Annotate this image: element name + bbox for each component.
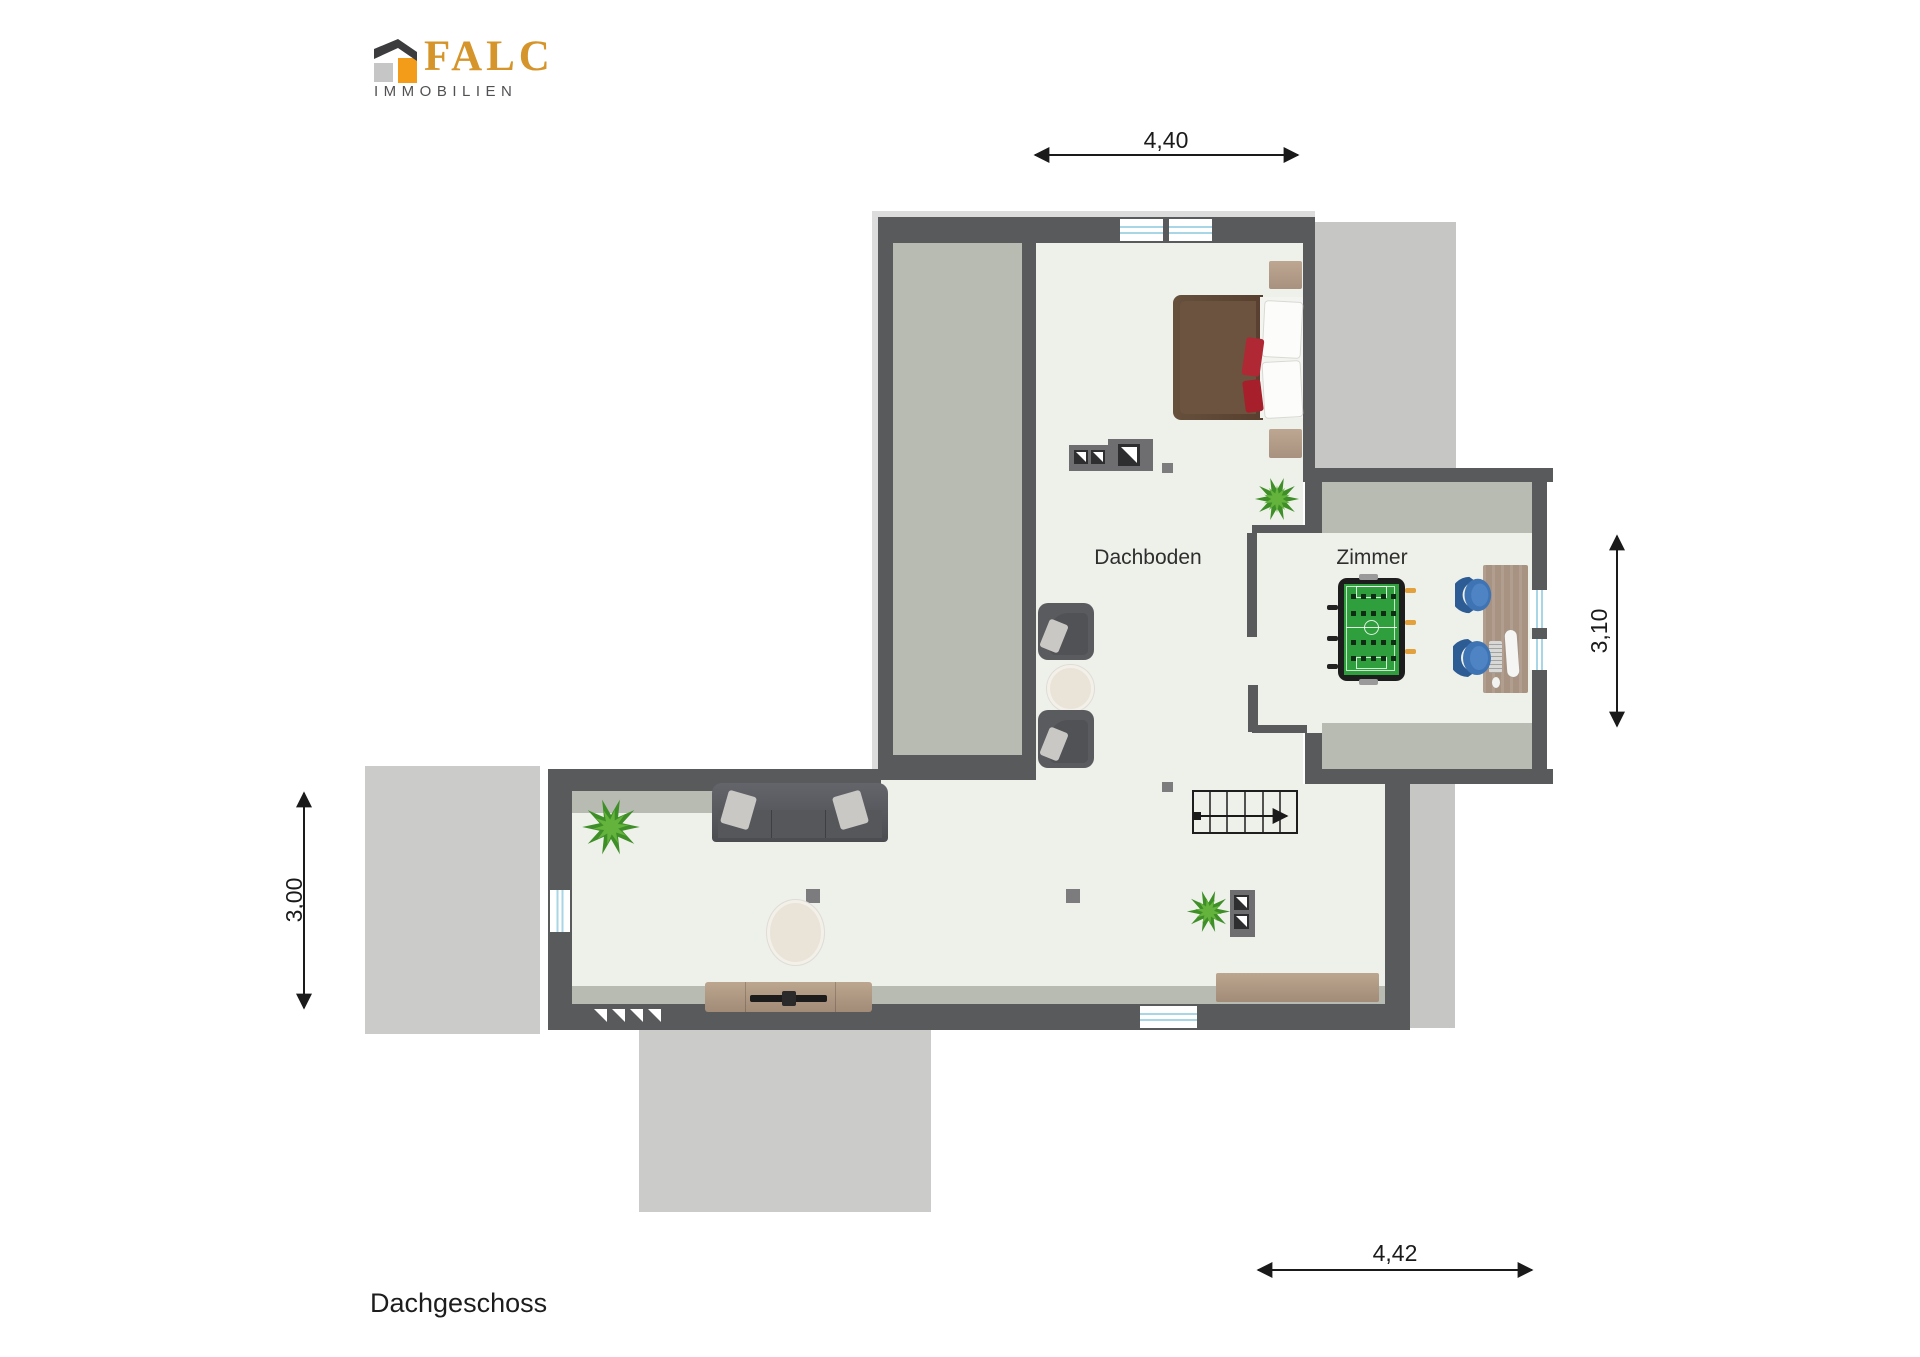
foosball-handle-left-1	[1327, 605, 1338, 610]
plant-bedroom	[1254, 476, 1300, 522]
post-near-stairs	[1162, 782, 1173, 792]
shelf-triangle-2	[1236, 916, 1247, 927]
bed-pillow-top	[1262, 300, 1304, 359]
post-living-right	[1066, 889, 1080, 903]
floor-connector	[881, 780, 1036, 791]
side-table-round	[1047, 665, 1094, 712]
wall-main-right	[1303, 243, 1315, 468]
dimension-label-bottom: 4,42	[1335, 1240, 1455, 1267]
window-zimmer-2	[1530, 639, 1549, 670]
wall-below-zimmer	[1385, 769, 1410, 1028]
drawer-triangle-3	[1121, 447, 1137, 463]
falc-house-logo-icon	[372, 38, 419, 85]
foosball-players-row-1	[1346, 594, 1397, 599]
foosball-table	[1338, 578, 1405, 681]
foosball-field	[1344, 584, 1399, 675]
wall-jog-top	[1252, 525, 1305, 533]
floor-bottom-wing	[572, 791, 1211, 1004]
falc-logo: FALC IMMOBILIEN	[372, 36, 632, 106]
foosball-handle-right-2	[1405, 620, 1416, 625]
drawer-triangle-1	[1076, 452, 1086, 462]
wall-wing-right	[1022, 243, 1036, 780]
attic-gray-wing-interior	[893, 243, 1022, 755]
bed-pillow-bottom	[1262, 360, 1304, 419]
armchair-2	[1038, 710, 1094, 768]
drawer-triangle-2	[1093, 452, 1103, 462]
foosball-handle-left-2	[1327, 636, 1338, 641]
red-accent-pillow-2	[1242, 379, 1264, 413]
sofa	[712, 783, 888, 842]
wall-zimmer-bottom	[1305, 769, 1553, 784]
foosball-players-row-2	[1346, 611, 1397, 616]
window-left	[550, 890, 570, 932]
window-bottom	[1140, 1006, 1197, 1028]
sideboard-right	[1216, 973, 1379, 1002]
roof-area-bottom	[639, 1028, 931, 1212]
tv-sideboard-divider-2	[835, 982, 836, 1012]
foosball-handle-left-3	[1327, 664, 1338, 669]
plant-living	[581, 797, 641, 857]
wall-wing-left	[878, 217, 893, 780]
room-label-zimmer: Zimmer	[1312, 546, 1432, 570]
room-label-dachboden: Dachboden	[1068, 546, 1228, 570]
staircase	[1192, 790, 1298, 834]
window-top-2	[1169, 219, 1212, 241]
window-zimmer-1	[1530, 590, 1549, 628]
office-chair-2	[1453, 636, 1495, 680]
wall-bottom	[548, 1004, 1410, 1030]
wall-zimmer-left-upper	[1305, 482, 1322, 533]
post-living-left	[806, 889, 820, 903]
dimension-label-top: 4,40	[1106, 127, 1226, 154]
plant-hall	[1186, 889, 1231, 934]
window-top-1	[1120, 219, 1163, 241]
dimension-label-left: 3,00	[281, 860, 311, 940]
office-chair-1	[1455, 574, 1495, 616]
foosball-center-circle	[1364, 620, 1379, 635]
zimmer-gray-band-bottom	[1322, 723, 1532, 769]
foosball-goal-top	[1359, 574, 1378, 580]
roof-area-left	[365, 766, 540, 1034]
floor-plan-page: FALC IMMOBILIEN	[0, 0, 1920, 1357]
logo-brand-text: FALC	[424, 32, 554, 81]
roof-area-top-right	[1315, 222, 1456, 468]
nightstand-bottom	[1269, 429, 1302, 458]
wall-top	[881, 217, 1315, 243]
zimmer-gray-band-top	[1322, 482, 1532, 533]
foosball-players-row-4	[1346, 656, 1397, 661]
logo-subtitle-text: IMMOBILIEN	[374, 83, 517, 100]
floor-title: Dachgeschoss	[370, 1288, 547, 1319]
foosball-handle-right-3	[1405, 649, 1416, 654]
hatch-triangle-2	[612, 1009, 625, 1022]
sofa-cushion-2	[772, 810, 826, 838]
wall-wing-bottom	[878, 755, 1036, 780]
wall-jog-bottom	[1252, 725, 1307, 733]
post-near-dresser	[1162, 463, 1173, 473]
foosball-handle-right-1	[1405, 588, 1416, 593]
hatch-triangle-4	[648, 1009, 661, 1022]
nightstand-top	[1269, 261, 1302, 289]
foosball-players-row-3	[1346, 640, 1397, 645]
wall-zimmer-top	[1303, 468, 1553, 482]
coffee-table-oval	[767, 900, 824, 965]
armchair-1	[1038, 603, 1094, 660]
tv-sideboard-divider-1	[745, 982, 746, 1012]
dimension-label-right: 3,10	[1586, 591, 1616, 671]
shelf-triangle-1	[1236, 897, 1247, 908]
foosball-goal-bottom	[1359, 679, 1378, 685]
wall-stair-stub-a	[1247, 533, 1257, 637]
hatch-triangle-1	[594, 1009, 607, 1022]
tv-mount	[782, 991, 796, 1006]
roof-area-below-zimmer	[1410, 784, 1455, 1028]
hatch-triangle-3	[630, 1009, 643, 1022]
